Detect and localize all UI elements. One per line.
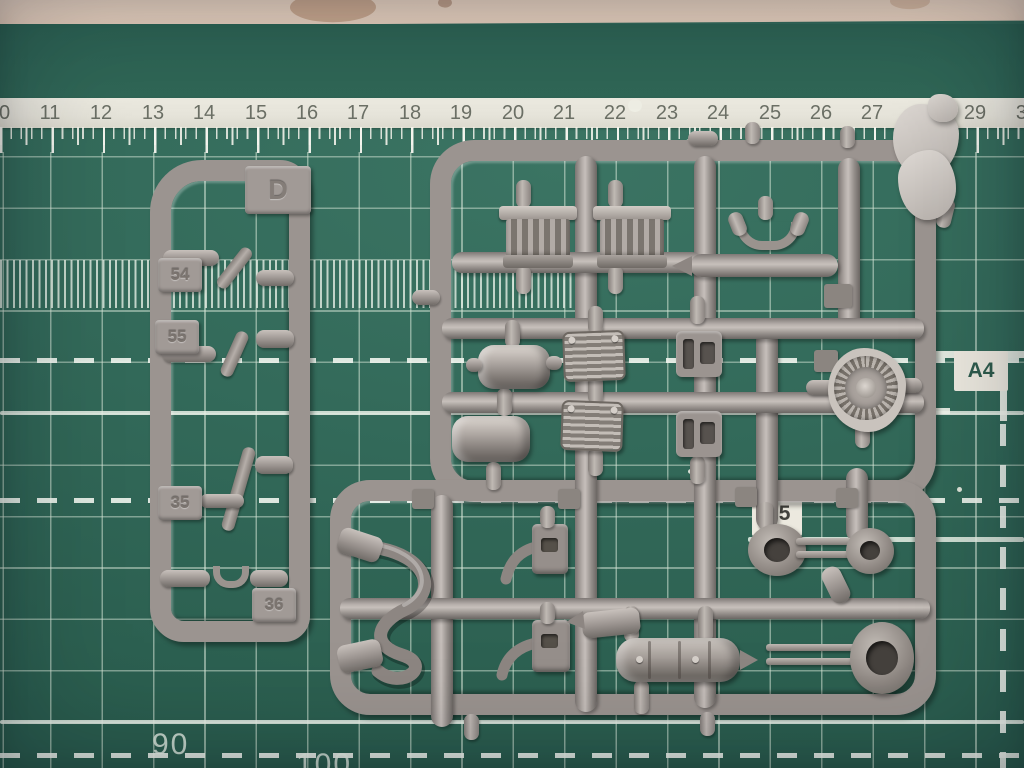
desk-stain-right xyxy=(890,0,930,9)
ruler-number: 20 xyxy=(491,98,535,128)
sprue-pin xyxy=(588,448,603,476)
sprue-pin xyxy=(486,462,501,490)
sprue-pin xyxy=(840,126,855,148)
a4-size-text: A4 xyxy=(968,359,995,383)
ruler-number: 19 xyxy=(439,98,483,128)
part-tag-55: 55 xyxy=(155,320,199,354)
sprue-pin xyxy=(690,296,705,324)
part-valve-cover-1 xyxy=(562,330,626,382)
part-flash-ridge xyxy=(928,94,958,122)
engine-top-flange xyxy=(593,206,671,220)
part-bracket-1 xyxy=(676,331,722,377)
mat-coordinate-100: 100 xyxy=(296,748,352,768)
sprue-gate-pad xyxy=(836,488,858,508)
ruler-number: 18 xyxy=(388,98,432,128)
a4-size-label: A4 xyxy=(954,351,1008,391)
part-small-cylinder xyxy=(256,270,294,286)
mat-dashed-line-vertical xyxy=(1000,424,1006,768)
part-small-cylinder xyxy=(250,570,288,587)
sprue-pin xyxy=(608,266,623,294)
part-small-cylinder xyxy=(160,570,210,587)
sprue-gate-pad xyxy=(735,487,757,507)
ruler-number: 30 xyxy=(1005,98,1024,128)
part-tag-36: 36 xyxy=(252,588,296,622)
part-tag-35: 35 xyxy=(158,486,202,520)
sprue-pin xyxy=(505,320,520,348)
engine-body xyxy=(506,219,570,257)
rib-line xyxy=(648,641,651,679)
ruler-number: 24 xyxy=(696,98,740,128)
part-small-cylinder xyxy=(255,456,293,474)
ruler-number: 29 xyxy=(953,98,997,128)
part-tag-54: 54 xyxy=(158,258,202,292)
sprue-pin xyxy=(758,196,773,220)
part-carburetor-2 xyxy=(532,620,570,672)
photo-sprue-on-cutting-mat: A4 B5 90 100 10 11 12 13 14 15 16 17 18 … xyxy=(0,0,1024,768)
sprue-pin xyxy=(634,680,649,714)
bolt-dot xyxy=(692,656,699,663)
ruler-number: 13 xyxy=(131,98,175,128)
engine-base xyxy=(503,255,573,268)
part-muffler-2 xyxy=(452,416,530,462)
sprue-pin xyxy=(745,122,760,144)
sprue-pin xyxy=(540,602,555,624)
ruler-number: 16 xyxy=(285,98,329,128)
muffler-nub xyxy=(466,358,482,372)
engine-base xyxy=(597,255,667,268)
conrod-shaft xyxy=(766,658,860,665)
part-small-cylinder xyxy=(256,330,294,348)
part-small-cylinder-tip xyxy=(565,611,585,631)
sprue-pin xyxy=(540,506,555,528)
bolt-dot xyxy=(568,337,575,344)
engine-body xyxy=(600,219,664,257)
sprue-pin xyxy=(516,180,531,208)
part-conrod-upper-small-ring xyxy=(846,528,894,574)
bracket-hole xyxy=(700,422,715,444)
mat-coordinate-90: 90 xyxy=(152,728,189,762)
mat-top-border xyxy=(0,24,1024,100)
part-carburetor-1 xyxy=(532,524,568,574)
conrod-hole xyxy=(866,641,898,675)
bolt-dot xyxy=(611,335,618,342)
part-hub-core xyxy=(856,378,876,398)
sprue-pin-horizontal xyxy=(688,131,718,146)
ruler-number: 11 xyxy=(28,98,72,128)
sprue-runner-vertical xyxy=(756,330,778,530)
carburetor-port xyxy=(541,538,558,552)
rib-line xyxy=(708,641,711,679)
conrod-shaft xyxy=(766,644,860,651)
ruler-number: 21 xyxy=(542,98,586,128)
carburetor-port xyxy=(541,634,558,648)
part-ribbed-cylinder xyxy=(616,638,740,682)
part-valve-cover-2 xyxy=(560,400,624,452)
ruler-strip: 10 11 12 13 14 15 16 17 18 19 20 21 22 2… xyxy=(0,98,1024,128)
part-number: 36 xyxy=(265,595,284,615)
part-number: 54 xyxy=(171,265,190,285)
sprue-pin xyxy=(516,266,531,294)
ruler-number: 26 xyxy=(799,98,843,128)
dust-speck xyxy=(628,99,642,112)
ruler-number: 17 xyxy=(336,98,380,128)
ruler-number: 23 xyxy=(645,98,689,128)
part-number: 55 xyxy=(168,327,187,347)
part-ribbed-cylinder-tip xyxy=(740,650,758,670)
engine-top-flange xyxy=(499,206,577,220)
part-number: 35 xyxy=(171,493,190,513)
dust-speck xyxy=(957,487,962,492)
conrod-hole xyxy=(764,538,790,562)
part-bracket-2 xyxy=(676,411,722,457)
desk-surface xyxy=(0,0,1024,26)
ruler-number: 12 xyxy=(79,98,123,128)
ruler-number: 15 xyxy=(234,98,278,128)
desk-stain-small xyxy=(438,0,452,8)
part-conrod-upper-big-ring xyxy=(748,524,806,576)
sprue-pin-horizontal xyxy=(412,290,440,305)
ruler-number: 27 xyxy=(850,98,894,128)
sprue-pin xyxy=(698,606,713,642)
muffler-nub xyxy=(546,356,562,370)
ruler-number: 14 xyxy=(182,98,226,128)
part-engine-block-1 xyxy=(503,206,573,268)
bracket-slot xyxy=(683,339,694,369)
sprue-pin xyxy=(608,180,623,208)
sprue-pin xyxy=(700,712,715,736)
bracket-slot xyxy=(683,419,694,449)
bracket-hole xyxy=(700,342,715,364)
conrod-hole xyxy=(860,541,880,560)
part-muffler-1 xyxy=(478,345,550,389)
bolt-dot xyxy=(636,656,643,663)
bolt-dot xyxy=(610,407,617,414)
part-conrod-lower-big-ring xyxy=(850,622,914,694)
sprue-pin xyxy=(690,456,705,484)
sprue-gate-pad xyxy=(824,284,852,308)
part-engine-block-2 xyxy=(597,206,667,268)
part-long-rod xyxy=(690,254,838,277)
rib-line xyxy=(678,641,681,679)
sprue-pin xyxy=(497,388,512,416)
bolt-dot xyxy=(567,405,574,412)
desk-stain xyxy=(290,0,376,22)
part-small-cylinder xyxy=(200,494,244,508)
ruler-number: 10 xyxy=(0,98,21,128)
sprue-d-gate-letter: D xyxy=(268,175,288,206)
part-long-rod-tip xyxy=(672,256,692,276)
sprue-d-gate-plate: D xyxy=(245,166,311,214)
